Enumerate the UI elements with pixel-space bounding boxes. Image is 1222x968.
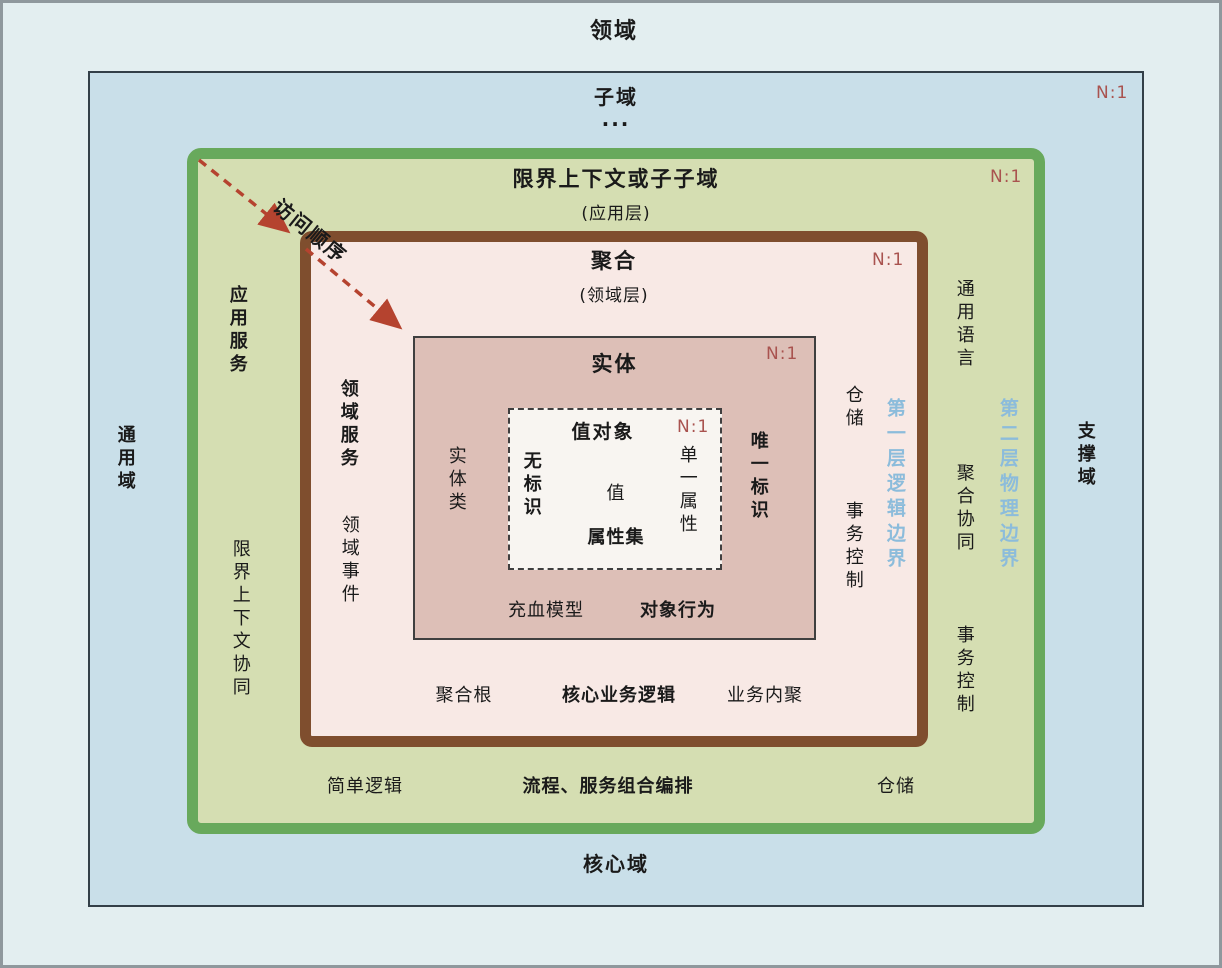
process-orchestration-label: 流程、服务组合编排 [443,772,773,798]
aggregate-collaboration-label: 聚合协同 [954,463,974,555]
aggregate-subtitle: (领域层) [300,281,928,306]
rich-model-label: 充血模型 [481,596,611,622]
transaction-control-inner-label: 事务控制 [843,501,863,593]
value-object-right-label: 单一属性 [677,445,697,537]
repository-bottom-label: 仓储 [871,772,921,798]
domain-event-label: 领域事件 [339,515,359,607]
subdomain-n1-badge: N:1 [1096,83,1128,103]
aggregate-title: 聚合 [300,245,928,275]
context-collaboration-label: 限界上下文协同 [230,539,250,700]
object-behavior-label: 对象行为 [613,596,743,622]
repository-inner-label: 仓储 [843,385,863,431]
ddd-diagram: 领域 子域 ... N:1 限界上下文或子子域 (应用层) N:1 聚合 (领域… [0,0,1222,968]
aggregate-root-label: 聚合根 [419,681,509,707]
first-logic-boundary-label: 第一层逻辑边界 [884,398,905,573]
core-domain-label: 核心域 [187,848,1045,877]
second-physical-boundary-label: 第二层物理边界 [997,398,1018,573]
value-object-n1-badge: N:1 [677,417,709,437]
bounded-context-n1-badge: N:1 [990,167,1022,187]
subdomain-ellipsis: ... [88,107,1144,131]
supporting-domain-label: 支撑域 [1075,421,1095,490]
value-object-center-label: 值 [586,479,646,505]
generic-domain-label: 通用域 [115,425,135,494]
application-service-label: 应用服务 [227,285,247,377]
value-object-left-label: 无标识 [521,451,541,520]
value-object-bottom-label: 属性集 [546,523,686,549]
entity-class-label: 实体类 [446,446,466,515]
simple-logic-label: 简单逻辑 [315,772,415,798]
business-cohesion-label: 业务内聚 [715,681,815,707]
aggregate-n1-badge: N:1 [872,250,904,270]
domain-service-label: 领域服务 [338,379,358,471]
transaction-control-outer-label: 事务控制 [954,625,974,717]
entity-title: 实体 [413,348,816,378]
value-object-title: 值对象 [508,417,698,444]
entity-n1-badge: N:1 [766,344,798,364]
bounded-context-title: 限界上下文或子子域 [187,163,1045,193]
core-business-logic-label: 核心业务逻辑 [539,681,699,707]
unique-identity-label: 唯一标识 [748,431,768,523]
domain-title: 领域 [3,13,1222,45]
subdomain-title: 子域 [88,81,1144,110]
ubiquitous-language-label: 通用语言 [954,279,974,371]
